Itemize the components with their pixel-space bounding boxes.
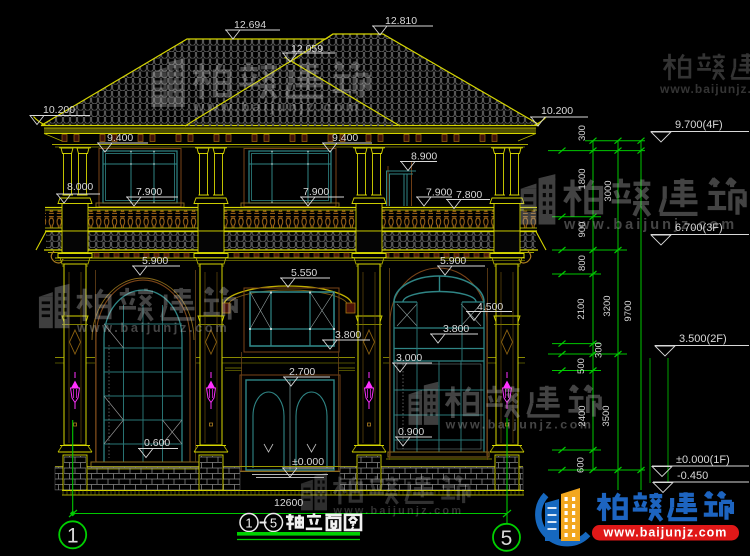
- svg-text:3.800: 3.800: [335, 329, 361, 341]
- svg-text:3200: 3200: [602, 295, 613, 316]
- svg-text:±0.000(1F): ±0.000(1F): [676, 454, 730, 466]
- svg-text:7.900: 7.900: [303, 186, 329, 198]
- svg-text:3.000: 3.000: [396, 352, 422, 364]
- svg-text:12.059: 12.059: [291, 43, 323, 55]
- svg-text:www.baijunjz.com: www.baijunjz.com: [192, 98, 361, 114]
- svg-text:7.900: 7.900: [136, 186, 162, 198]
- svg-text:5: 5: [270, 516, 277, 531]
- svg-text:3.500(2F): 3.500(2F): [679, 333, 727, 345]
- svg-text:3500: 3500: [601, 405, 612, 426]
- svg-text:www.baijunjz.com: www.baijunjz.com: [659, 82, 750, 96]
- svg-text:8.900: 8.900: [411, 151, 437, 163]
- svg-text:7.900: 7.900: [426, 187, 452, 199]
- svg-text:±0.000: ±0.000: [292, 456, 324, 468]
- svg-text:12.810: 12.810: [385, 15, 417, 27]
- svg-text:600: 600: [576, 457, 587, 473]
- svg-text:12.694: 12.694: [234, 19, 266, 31]
- svg-text:-0.450: -0.450: [677, 470, 708, 482]
- svg-text:500: 500: [576, 358, 587, 374]
- svg-text:300: 300: [577, 125, 588, 141]
- svg-text:5: 5: [501, 527, 513, 550]
- svg-text:5.900: 5.900: [142, 255, 168, 267]
- svg-text:1: 1: [67, 525, 79, 548]
- svg-text:2100: 2100: [576, 298, 587, 319]
- svg-text:9.400: 9.400: [332, 132, 358, 144]
- svg-text:5.900: 5.900: [440, 255, 466, 267]
- svg-text:9.400: 9.400: [107, 132, 133, 144]
- svg-text:800: 800: [577, 255, 588, 271]
- svg-text:12600: 12600: [274, 497, 303, 509]
- svg-text:9.700(4F): 9.700(4F): [675, 119, 723, 131]
- svg-text:www.baijunjz.com: www.baijunjz.com: [603, 526, 728, 540]
- svg-text:0.600: 0.600: [144, 437, 170, 449]
- svg-text:7.800: 7.800: [456, 189, 482, 201]
- svg-text:3.800: 3.800: [443, 323, 469, 335]
- svg-text:0.900: 0.900: [398, 426, 424, 438]
- svg-text:4.500: 4.500: [477, 301, 503, 313]
- svg-text:10.200: 10.200: [541, 105, 573, 117]
- svg-text:8.000: 8.000: [67, 181, 93, 193]
- svg-text:www.baijunjz.com: www.baijunjz.com: [76, 320, 229, 335]
- svg-text:9700: 9700: [623, 300, 634, 321]
- svg-text:5.550: 5.550: [291, 267, 317, 279]
- svg-text:www.baijunjz.com: www.baijunjz.com: [445, 418, 594, 432]
- svg-text:10.200: 10.200: [43, 104, 75, 116]
- svg-text:1: 1: [245, 516, 252, 531]
- svg-text:3000: 3000: [603, 180, 614, 201]
- svg-text:300: 300: [594, 342, 605, 358]
- svg-text:www.baijunjz.com: www.baijunjz.com: [563, 217, 737, 233]
- svg-text:2.700: 2.700: [289, 366, 315, 378]
